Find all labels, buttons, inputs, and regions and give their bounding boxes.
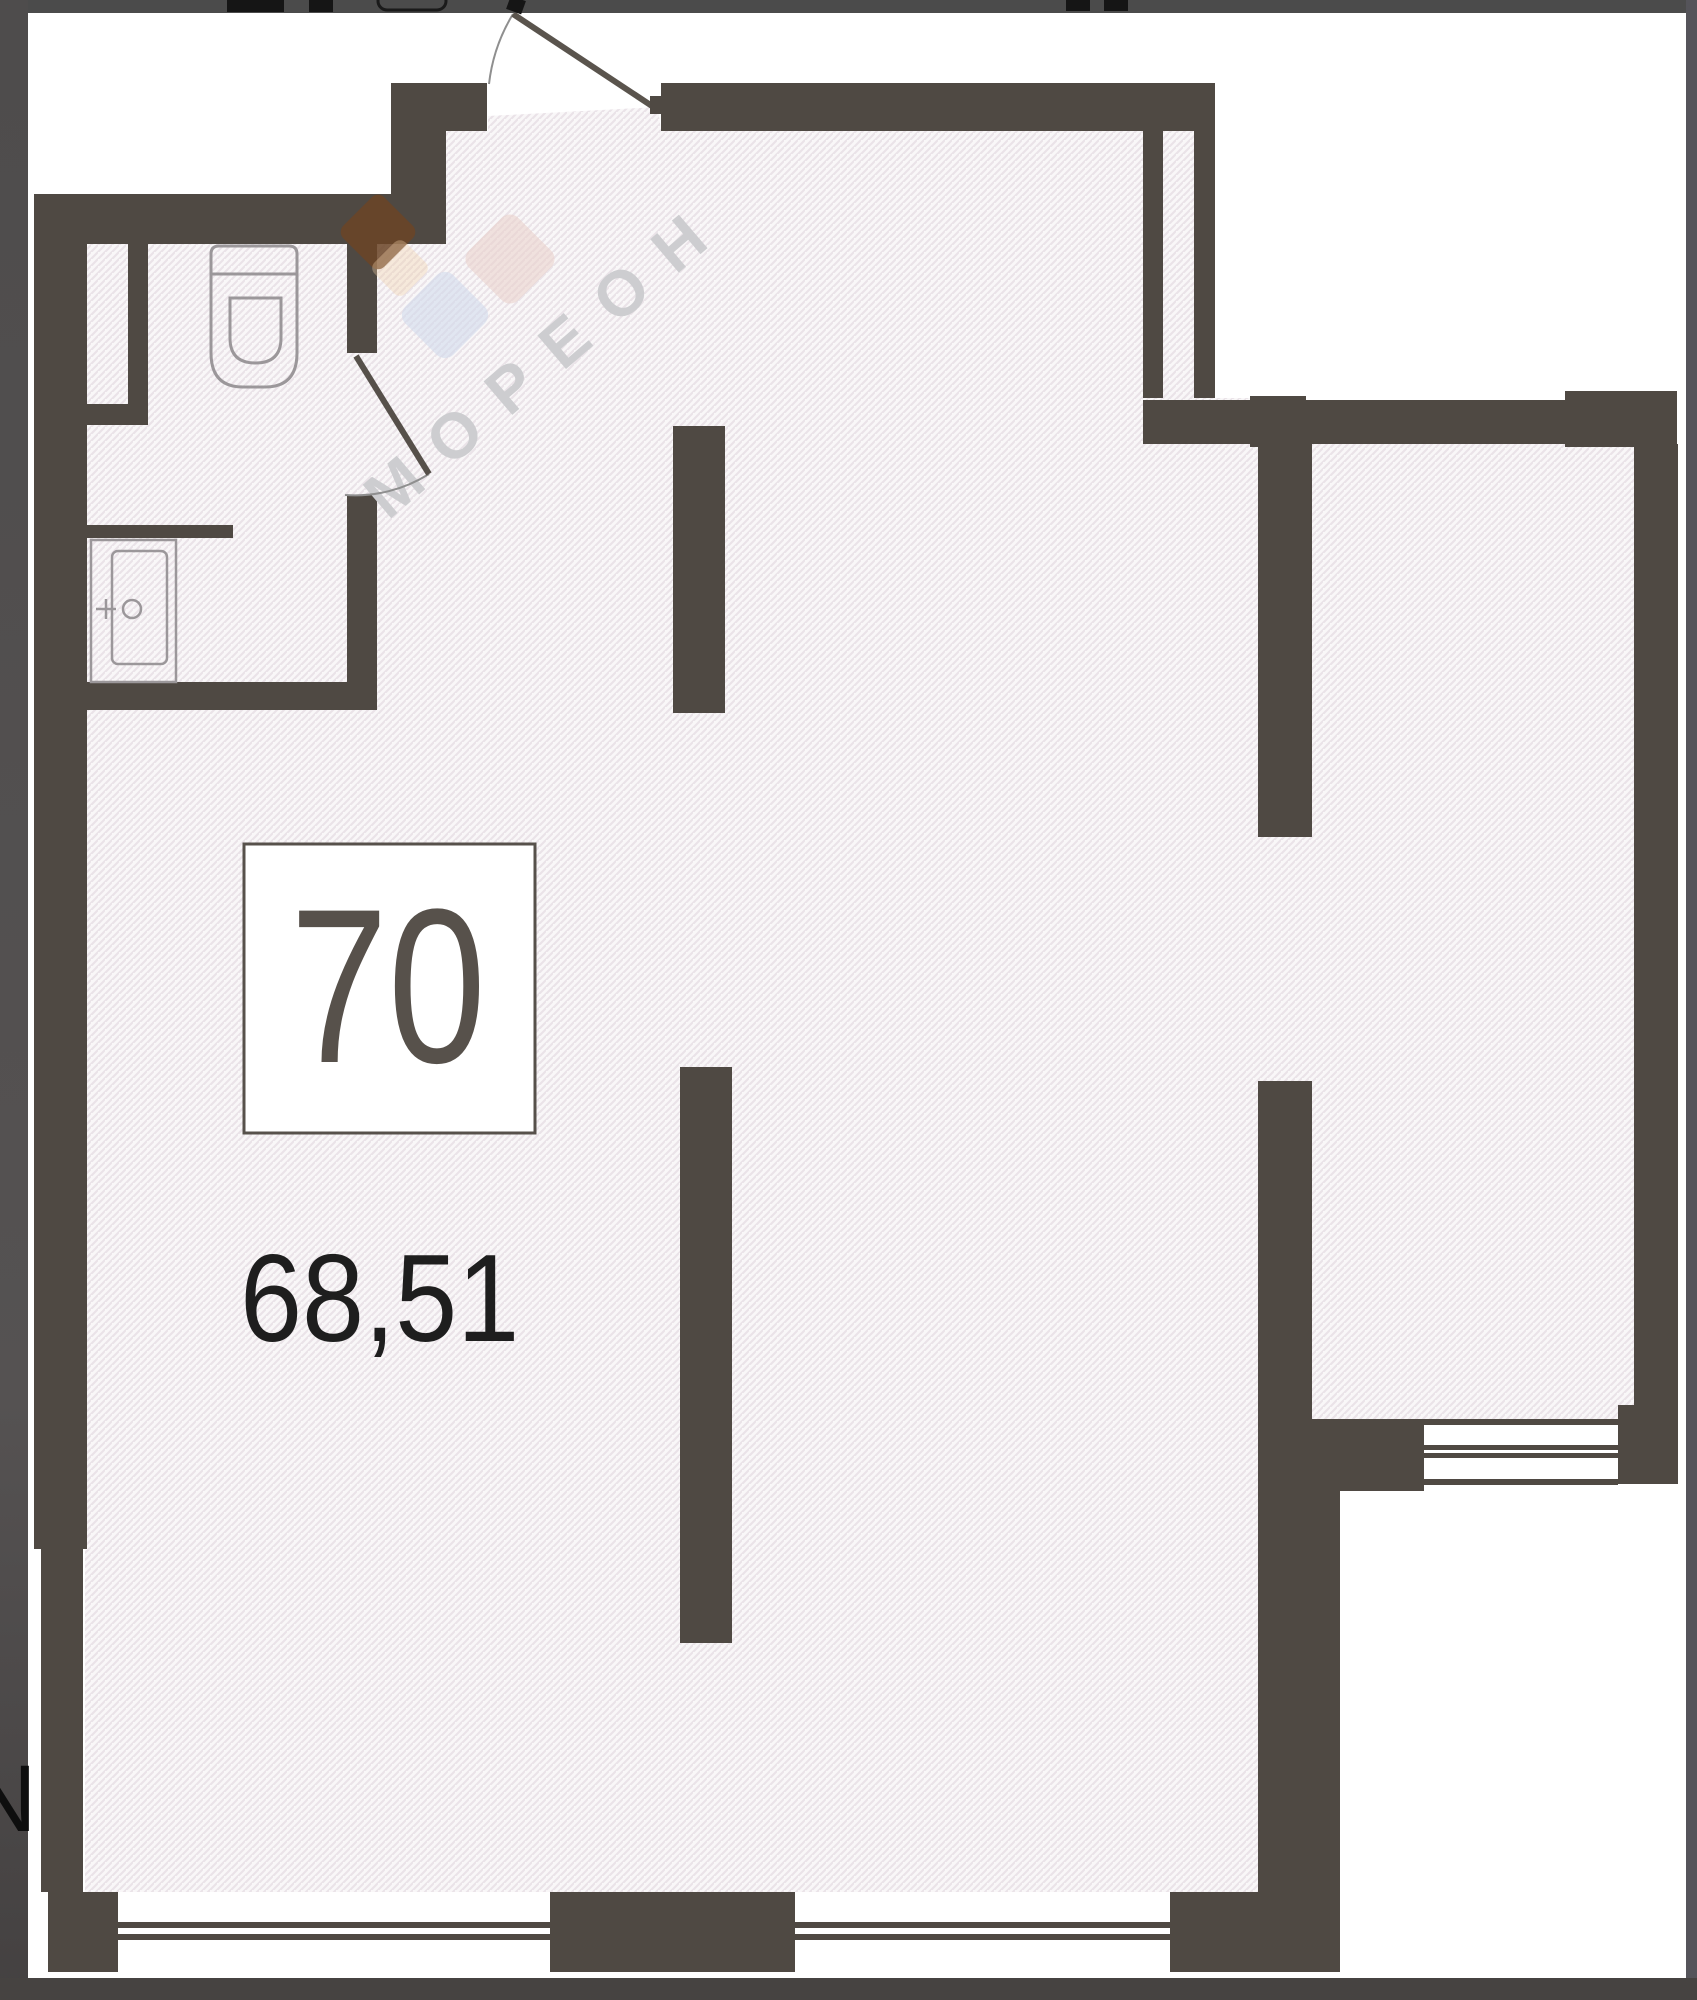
- svg-text:68,51: 68,51: [240, 1229, 519, 1368]
- svg-text:70: 70: [290, 864, 486, 1109]
- svg-text:N: N: [0, 1746, 37, 1852]
